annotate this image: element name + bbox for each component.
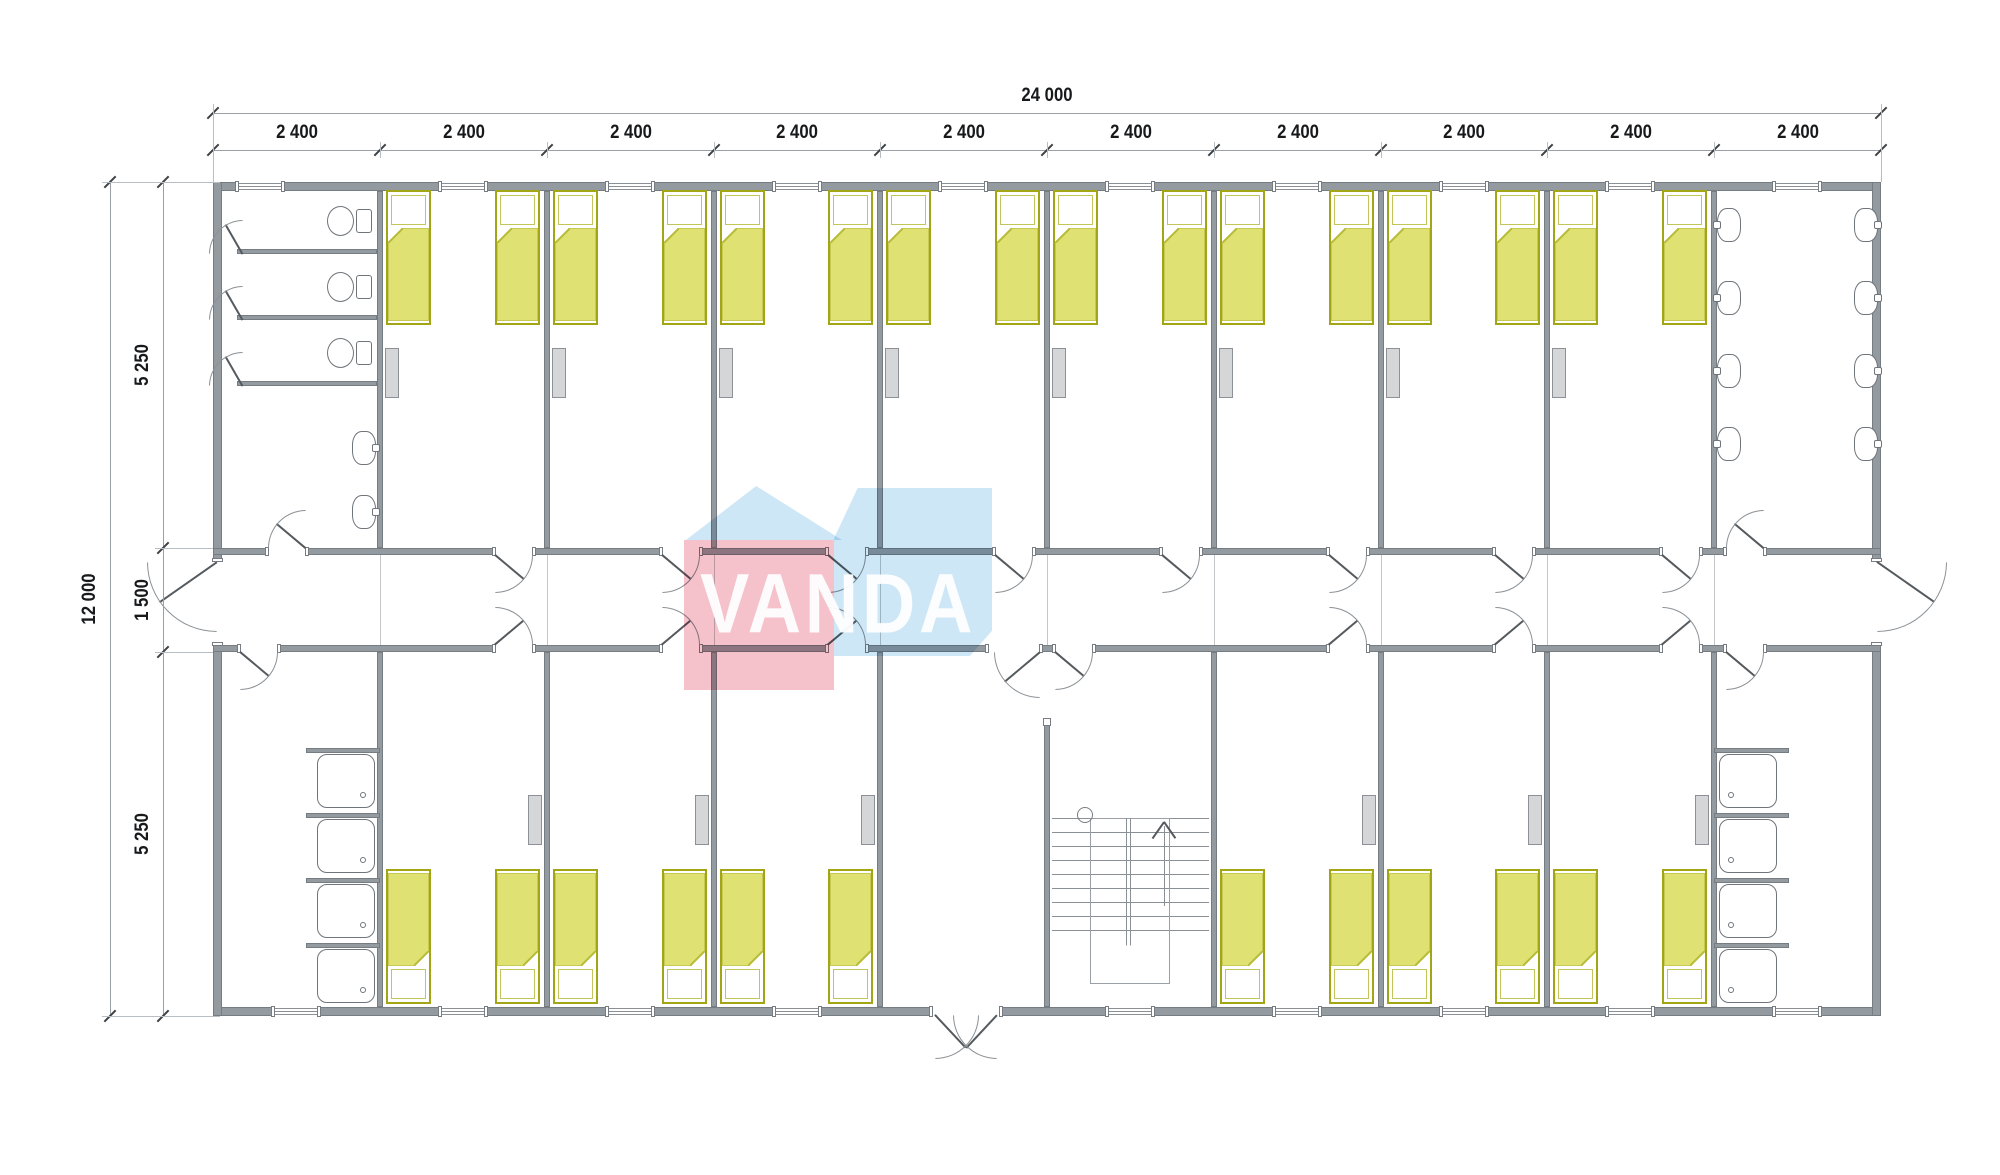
dimension-label: 2 400 [1610, 122, 1652, 144]
dimension-label: 2 400 [943, 122, 985, 144]
floorplan-canvas: 24 0002 4002 4002 4002 4002 4002 4002 40… [0, 0, 2000, 1175]
dimension-label: 2 400 [443, 122, 485, 144]
dimension-annotations: 24 0002 4002 4002 4002 4002 4002 4002 40… [0, 0, 2000, 1175]
dim-ext [213, 142, 214, 158]
dim-ext [1547, 142, 1548, 158]
dim-ext [155, 652, 213, 653]
dim-line-overall-height [110, 182, 111, 1016]
dimension-label: 2 400 [610, 122, 652, 144]
dim-ext [155, 182, 213, 183]
dimension-label: 24 000 [1021, 85, 1072, 107]
dimension-label: 1 500 [132, 579, 154, 621]
dimension-label: 2 400 [1443, 122, 1485, 144]
dim-ext [155, 548, 213, 549]
dimension-label: 5 250 [132, 813, 154, 855]
dim-ext [1381, 142, 1382, 158]
dimension-label: 2 400 [276, 122, 318, 144]
dim-ext [1881, 142, 1882, 158]
dim-ext [547, 142, 548, 158]
dimension-label: 12 000 [79, 573, 101, 624]
dim-line-height-segments [163, 182, 164, 1016]
dim-line-overall-width [213, 113, 1881, 114]
dimension-label: 2 400 [1277, 122, 1319, 144]
dimension-label: 2 400 [776, 122, 818, 144]
dim-ext [880, 142, 881, 158]
dim-ext [1714, 142, 1715, 158]
dim-ext [380, 142, 381, 158]
dim-ext [1047, 142, 1048, 158]
dim-ext [714, 142, 715, 158]
dim-ext [1214, 142, 1215, 158]
dim-ext [155, 1016, 213, 1017]
dimension-label: 2 400 [1777, 122, 1819, 144]
dimension-label: 2 400 [1110, 122, 1152, 144]
dimension-label: 5 250 [132, 344, 154, 386]
